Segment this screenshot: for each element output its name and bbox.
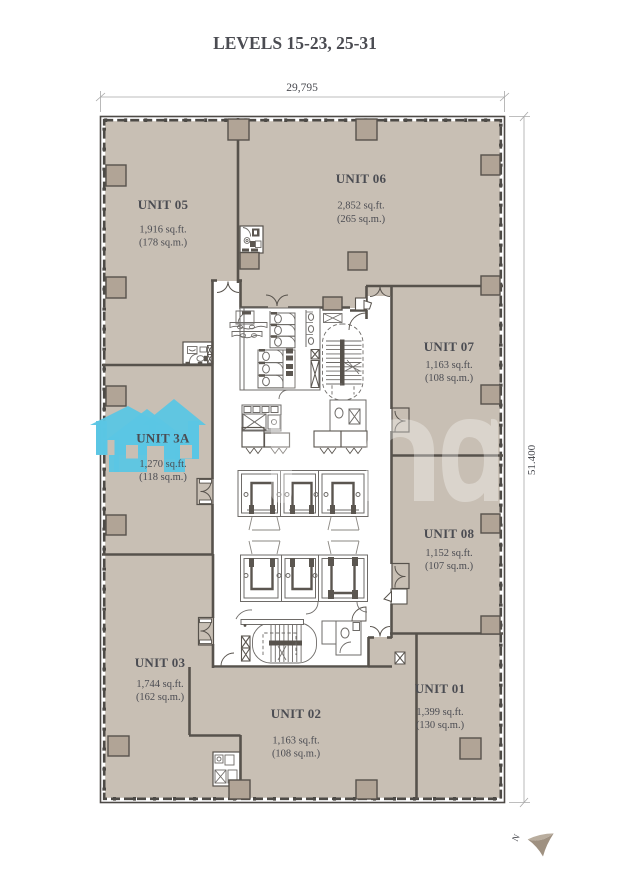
svg-text:UNIT 07: UNIT 07 <box>424 339 475 354</box>
svg-text:29,795: 29,795 <box>286 82 318 94</box>
svg-text:1,152 sq.ft.: 1,152 sq.ft. <box>425 548 472 559</box>
svg-text:1,163 sq.ft.: 1,163 sq.ft. <box>272 736 319 747</box>
svg-text:(118 sq.m.): (118 sq.m.) <box>139 472 187 483</box>
svg-text:2,852 sq.ft.: 2,852 sq.ft. <box>337 201 384 212</box>
svg-text:UNIT 06: UNIT 06 <box>336 171 387 186</box>
svg-text:(130 sq.m.): (130 sq.m.) <box>416 720 465 731</box>
svg-text:UNIT 05: UNIT 05 <box>138 197 189 212</box>
svg-text:LEVELS 15-23, 25-31: LEVELS 15-23, 25-31 <box>213 33 377 53</box>
svg-text:1,744 sq.ft.: 1,744 sq.ft. <box>136 679 183 690</box>
svg-text:UNIT 08: UNIT 08 <box>424 526 475 541</box>
svg-text:UNIT 3A: UNIT 3A <box>136 431 190 446</box>
svg-text:(108 sq.m.): (108 sq.m.) <box>425 373 474 384</box>
svg-text:(162 sq.m.): (162 sq.m.) <box>136 692 185 703</box>
svg-text:1,163 sq.ft.: 1,163 sq.ft. <box>425 360 472 371</box>
svg-text:1,399 sq.ft.: 1,399 sq.ft. <box>416 707 463 718</box>
svg-text:N: N <box>510 832 522 843</box>
svg-text:51.400: 51.400 <box>526 444 538 475</box>
svg-text:1,270 sq.ft.: 1,270 sq.ft. <box>139 459 186 470</box>
svg-text:1,916 sq.ft.: 1,916 sq.ft. <box>139 225 186 236</box>
svg-text:UNIT 03: UNIT 03 <box>135 655 186 670</box>
svg-text:UNIT 02: UNIT 02 <box>271 706 322 721</box>
svg-text:(178 sq.m.): (178 sq.m.) <box>139 238 188 249</box>
svg-text:(108 sq.m.): (108 sq.m.) <box>272 749 321 760</box>
svg-text:(107 sq.m.): (107 sq.m.) <box>425 561 474 572</box>
svg-text:(265 sq.m.): (265 sq.m.) <box>337 214 386 225</box>
svg-text:UNIT 01: UNIT 01 <box>415 681 466 696</box>
